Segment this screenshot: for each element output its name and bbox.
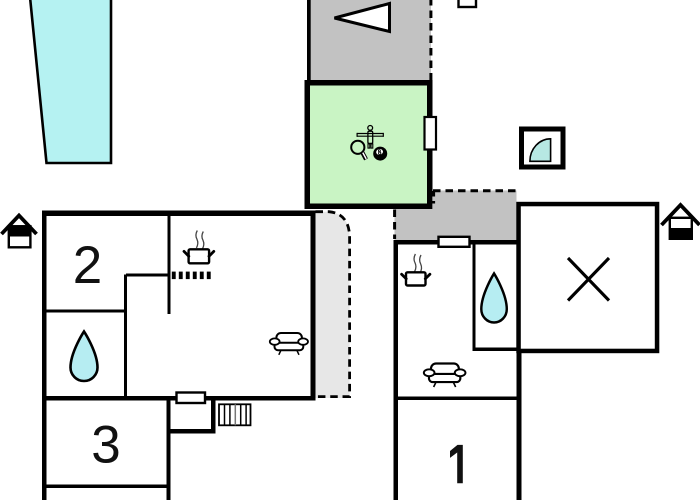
svg-text:2: 2 bbox=[73, 236, 102, 295]
svg-text:3: 3 bbox=[91, 416, 120, 475]
